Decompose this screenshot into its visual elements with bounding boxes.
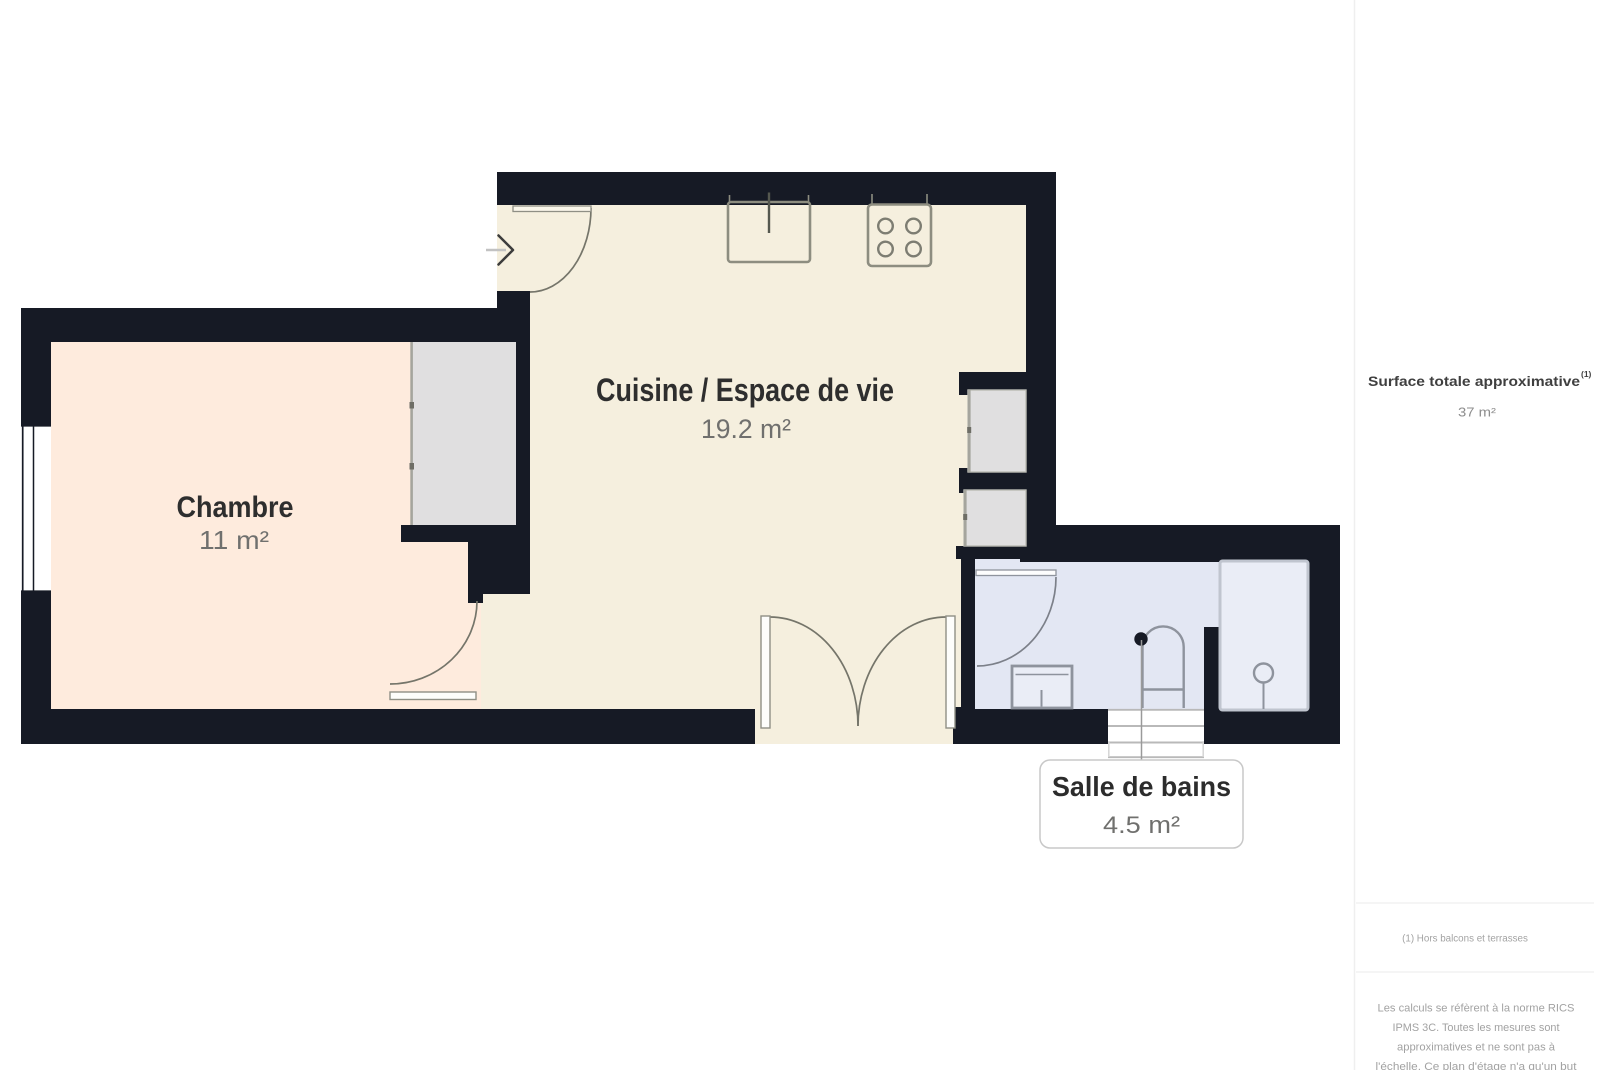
svg-text:Cuisine / Espace de vie: Cuisine / Espace de vie	[596, 372, 894, 408]
svg-text:Chambre: Chambre	[177, 491, 294, 524]
svg-text:19.2 m²: 19.2 m²	[701, 414, 791, 444]
svg-text:Salle de bains: Salle de bains	[1052, 771, 1231, 802]
svg-text:37 m²: 37 m²	[1458, 405, 1497, 420]
svg-text:approximatives et ne sont pas: approximatives et ne sont pas à	[1397, 1042, 1555, 1054]
svg-text:IPMS 3C. Toutes les mesures so: IPMS 3C. Toutes les mesures sont	[1393, 1022, 1560, 1034]
svg-text:4.5 m²: 4.5 m²	[1103, 812, 1180, 839]
svg-text:l'échelle. Ce plan d'étage n'a: l'échelle. Ce plan d'étage n'a qu'un but	[1376, 1061, 1577, 1070]
svg-text:(1) Hors balcons et terrasses: (1) Hors balcons et terrasses	[1402, 934, 1528, 945]
svg-text:(1): (1)	[1581, 369, 1592, 379]
svg-text:11 m²: 11 m²	[199, 525, 269, 555]
svg-text:Surface totale approximative: Surface totale approximative	[1368, 374, 1580, 389]
svg-text:Les calculs se réfèrent à la n: Les calculs se réfèrent à la norme RICS	[1378, 1003, 1575, 1015]
